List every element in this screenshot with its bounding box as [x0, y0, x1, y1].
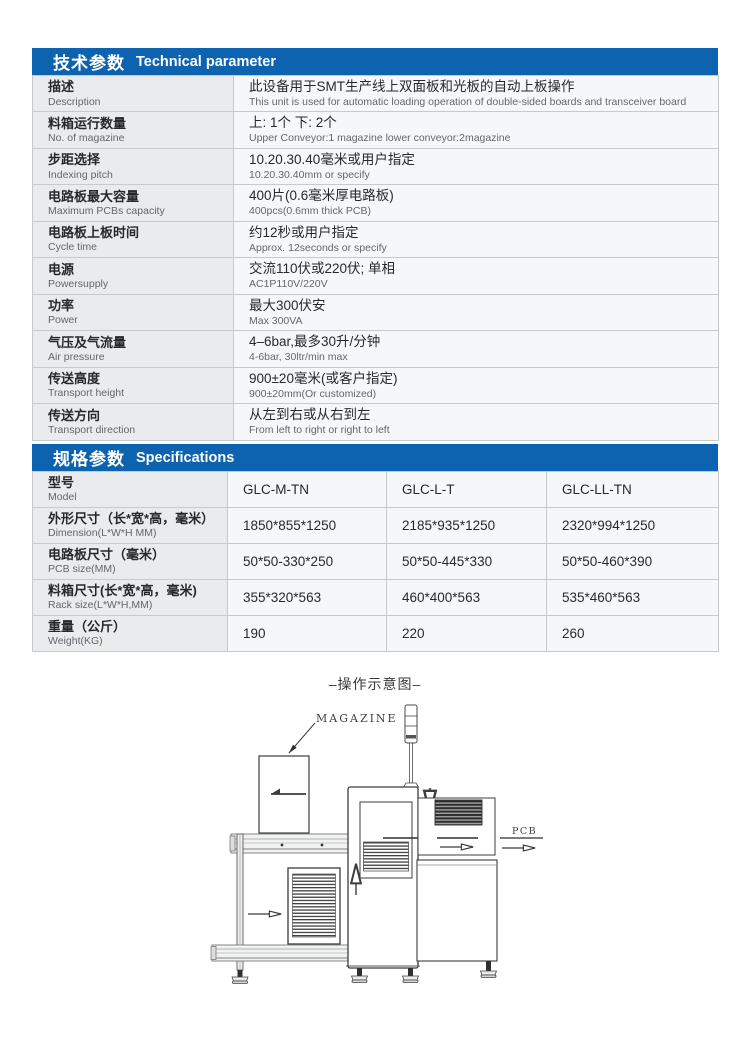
bottom-conveyor-rail — [211, 945, 352, 961]
row-value-en: Upper Conveyor:1 magazine lower conveyor… — [249, 132, 712, 145]
row-label-en: Model — [48, 491, 221, 504]
signal-tower-icon — [404, 705, 419, 787]
row-label-en: PCB size(MM) — [48, 563, 221, 576]
table-row: 传送方向 Transport direction 从左到右或从右到左 From … — [33, 404, 719, 440]
model-cell: GLC-M-TN — [228, 472, 387, 508]
row-value-cn: 上: 1个 下: 2个 — [249, 115, 712, 132]
row-label-cell: 传送方向 Transport direction — [33, 404, 234, 440]
value-cell: 50*50-460*390 — [547, 544, 719, 580]
row-label-cn: 描述 — [48, 79, 227, 95]
row-value-en: 10.20.30.40mm or specify — [249, 169, 712, 182]
table-row: 料箱尺寸(长*宽*高，毫米) Rack size(L*W*H,MM) 355*3… — [33, 580, 719, 616]
row-label-en: Indexing pitch — [48, 169, 227, 182]
row-label-en: Maximum PCBs capacity — [48, 205, 227, 218]
main-machine-cabinet — [346, 787, 427, 968]
operation-diagram: MAGAZINE — [160, 695, 590, 1015]
table-row: 步距选择 Indexing pitch 10.20.30.40毫米或用户指定 1… — [33, 148, 719, 184]
pcb-label: PCB — [512, 826, 537, 837]
table-row: 型号 Model GLC-M-TN GLC-L-T GLC-LL-TN — [33, 472, 719, 508]
row-value-cell: 上: 1个 下: 2个 Upper Conveyor:1 magazine lo… — [234, 112, 719, 148]
table-row: 电路板尺寸（毫米） PCB size(MM) 50*50-330*250 50*… — [33, 544, 719, 580]
technical-parameter-table: 描述 Description 此设备用于SMT生产线上双面板和光板的自动上板操作… — [32, 75, 719, 441]
row-label-cell: 料箱尺寸(长*宽*高，毫米) Rack size(L*W*H,MM) — [33, 580, 228, 616]
value-cell: 355*320*563 — [228, 580, 387, 616]
value-cell: 535*460*563 — [547, 580, 719, 616]
magazine-label: MAGAZINE — [316, 712, 398, 725]
row-label-cn: 步距选择 — [48, 152, 227, 168]
row-value-cell: 约12秒或用户指定 Approx. 12seconds or specify — [234, 221, 719, 257]
row-label-en: Transport direction — [48, 424, 227, 437]
magazine-leader-line — [289, 723, 315, 753]
row-value-cell: 交流110伏或220伏; 单相 AC1P110V/220V — [234, 258, 719, 294]
row-value-cell: 从左到右或从右到左 From left to right or right to… — [234, 404, 719, 440]
row-value-cell: 此设备用于SMT生产线上双面板和光板的自动上板操作 This unit is u… — [234, 76, 719, 112]
row-label-cn: 功率 — [48, 298, 227, 314]
row-label-cell: 描述 Description — [33, 76, 234, 112]
row-value-cn: 交流110伏或220伏; 单相 — [249, 261, 712, 278]
value-cell: 220 — [387, 616, 547, 652]
row-label-cell: 料箱运行数量 No. of magazine — [33, 112, 234, 148]
row-label-cn: 外形尺寸（长*宽*高，毫米） — [48, 511, 221, 527]
row-label-cn: 气压及气流量 — [48, 335, 227, 351]
value-cell: 460*400*563 — [387, 580, 547, 616]
row-label-cn: 电路板上板时间 — [48, 225, 227, 241]
row-label-en: Rack size(L*W*H,MM) — [48, 599, 221, 612]
value-cell: 2320*994*1250 — [547, 508, 719, 544]
table-row: 电路板最大容量 Maximum PCBs capacity 400片(0.6毫米… — [33, 185, 719, 221]
rail-end-cap — [211, 947, 216, 960]
row-value-cn: 400片(0.6毫米厚电路板) — [249, 188, 712, 205]
row-label-en: Cycle time — [48, 241, 227, 254]
row-label-cell: 传送高度 Transport height — [33, 367, 234, 403]
row-value-cell: 400片(0.6毫米厚电路板) 400pcs(0.6mm thick PCB) — [234, 185, 719, 221]
row-label-en: Air pressure — [48, 351, 227, 364]
row-value-cn: 10.20.30.40毫米或用户指定 — [249, 152, 712, 169]
row-value-en: From left to right or right to left — [249, 424, 712, 437]
technical-parameter-panel: 技术参数 Technical parameter 描述 Description … — [32, 48, 718, 441]
row-label-en: Dimension(L*W*H MM) — [48, 527, 221, 540]
row-label-cell: 重量（公斤） Weight(KG) — [33, 616, 228, 652]
table-row: 功率 Power 最大300伏安 Max 300VA — [33, 294, 719, 330]
rail-end-cap — [230, 836, 235, 851]
diagram-title: –操作示意图– — [0, 674, 750, 694]
row-label-cell: 电路板尺寸（毫米） PCB size(MM) — [33, 544, 228, 580]
row-value-cn: 900±20毫米(或客户指定) — [249, 371, 712, 388]
row-value-en: 400pcs(0.6mm thick PCB) — [249, 205, 712, 218]
row-label-en: Transport height — [48, 387, 227, 400]
row-label-cn: 料箱尺寸(长*宽*高，毫米) — [48, 583, 221, 599]
value-cell: 2185*935*1250 — [387, 508, 547, 544]
row-value-en: 4-6bar, 30ltr/min max — [249, 351, 712, 364]
foot — [352, 968, 368, 983]
row-label-cn: 传送方向 — [48, 408, 227, 424]
foot — [232, 970, 248, 984]
row-label-cn: 电源 — [48, 262, 227, 278]
upper-conveyor-rail — [230, 834, 351, 853]
value-cell: 260 — [547, 616, 719, 652]
technical-parameter-header: 技术参数 Technical parameter — [32, 48, 718, 75]
row-value-en: This unit is used for automatic loading … — [249, 96, 712, 109]
value-cell: 190 — [228, 616, 387, 652]
lower-vent-grille — [288, 868, 340, 944]
table-row: 电路板上板时间 Cycle time 约12秒或用户指定 Approx. 12s… — [33, 221, 719, 257]
value-cell: 1850*855*1250 — [228, 508, 387, 544]
pcb-exit-group: PCB — [500, 826, 543, 848]
value-cell: 50*50-330*250 — [228, 544, 387, 580]
specifications-header: 规格参数 Specifications — [32, 444, 718, 471]
row-label-cell: 电源 Powersupply — [33, 258, 234, 294]
row-label-cn: 传送高度 — [48, 371, 227, 387]
model-cell: GLC-LL-TN — [547, 472, 719, 508]
table-row: 传送高度 Transport height 900±20毫米(或客户指定) 90… — [33, 367, 719, 403]
technical-title-cn: 技术参数 — [53, 49, 125, 74]
table-row: 描述 Description 此设备用于SMT生产线上双面板和光板的自动上板操作… — [33, 76, 719, 112]
row-label-cn: 型号 — [48, 475, 221, 491]
right-cabinet — [417, 860, 497, 961]
specifications-title-cn: 规格参数 — [53, 445, 125, 470]
row-label-en: Description — [48, 96, 227, 109]
row-value-cn: 从左到右或从右到左 — [249, 407, 712, 424]
row-label-cn: 料箱运行数量 — [48, 116, 227, 132]
foot — [403, 968, 419, 983]
specifications-table: 型号 Model GLC-M-TN GLC-L-T GLC-LL-TN 外形尺寸… — [32, 471, 719, 652]
row-label-cell: 电路板上板时间 Cycle time — [33, 221, 234, 257]
row-value-cn: 此设备用于SMT生产线上双面板和光板的自动上板操作 — [249, 79, 712, 96]
row-label-en: Power — [48, 314, 227, 327]
model-cell: GLC-L-T — [387, 472, 547, 508]
row-label-cn: 电路板尺寸（毫米） — [48, 547, 221, 563]
row-value-en: 900±20mm(Or customized) — [249, 388, 712, 401]
row-value-cn: 最大300伏安 — [249, 298, 712, 315]
row-label-en: No. of magazine — [48, 132, 227, 145]
row-value-cn: 约12秒或用户指定 — [249, 225, 712, 242]
row-label-cn: 重量（公斤） — [48, 619, 221, 635]
row-label-cell: 外形尺寸（长*宽*高，毫米） Dimension(L*W*H MM) — [33, 508, 228, 544]
row-value-cell: 900±20毫米(或客户指定) 900±20mm(Or customized) — [234, 367, 719, 403]
specifications-title-en: Specifications — [136, 450, 234, 466]
row-value-cell: 4–6bar,最多30升/分钟 4-6bar, 30ltr/min max — [234, 331, 719, 367]
row-value-en: AC1P110V/220V — [249, 278, 712, 291]
foot — [481, 961, 497, 978]
door-vent-grille — [364, 842, 409, 871]
table-row: 外形尺寸（长*宽*高，毫米） Dimension(L*W*H MM) 1850*… — [33, 508, 719, 544]
row-label-en: Powersupply — [48, 278, 227, 291]
value-cell: 50*50-445*330 — [387, 544, 547, 580]
row-label-cn: 电路板最大容量 — [48, 189, 227, 205]
row-label-cell: 功率 Power — [33, 294, 234, 330]
row-label-cell: 步距选择 Indexing pitch — [33, 148, 234, 184]
unloading-unit — [418, 798, 495, 855]
table-row: 气压及气流量 Air pressure 4–6bar,最多30升/分钟 4-6b… — [33, 331, 719, 367]
row-value-en: Approx. 12seconds or specify — [249, 242, 712, 255]
table-row: 电源 Powersupply 交流110伏或220伏; 单相 AC1P110V/… — [33, 258, 719, 294]
row-value-en: Max 300VA — [249, 315, 712, 328]
table-row: 料箱运行数量 No. of magazine 上: 1个 下: 2个 Upper… — [33, 112, 719, 148]
table-row: 重量（公斤） Weight(KG) 190 220 260 — [33, 616, 719, 652]
row-value-cell: 最大300伏安 Max 300VA — [234, 294, 719, 330]
stacked-pcb-block — [435, 800, 482, 825]
row-label-cell: 气压及气流量 Air pressure — [33, 331, 234, 367]
row-value-cn: 4–6bar,最多30升/分钟 — [249, 334, 712, 351]
row-label-cell: 型号 Model — [33, 472, 228, 508]
specifications-panel: 规格参数 Specifications 型号 Model GLC-M-TN GL… — [32, 444, 718, 652]
row-value-cell: 10.20.30.40毫米或用户指定 10.20.30.40mm or spec… — [234, 148, 719, 184]
technical-title-en: Technical parameter — [136, 54, 276, 70]
row-label-cell: 电路板最大容量 Maximum PCBs capacity — [33, 185, 234, 221]
row-label-en: Weight(KG) — [48, 635, 221, 648]
